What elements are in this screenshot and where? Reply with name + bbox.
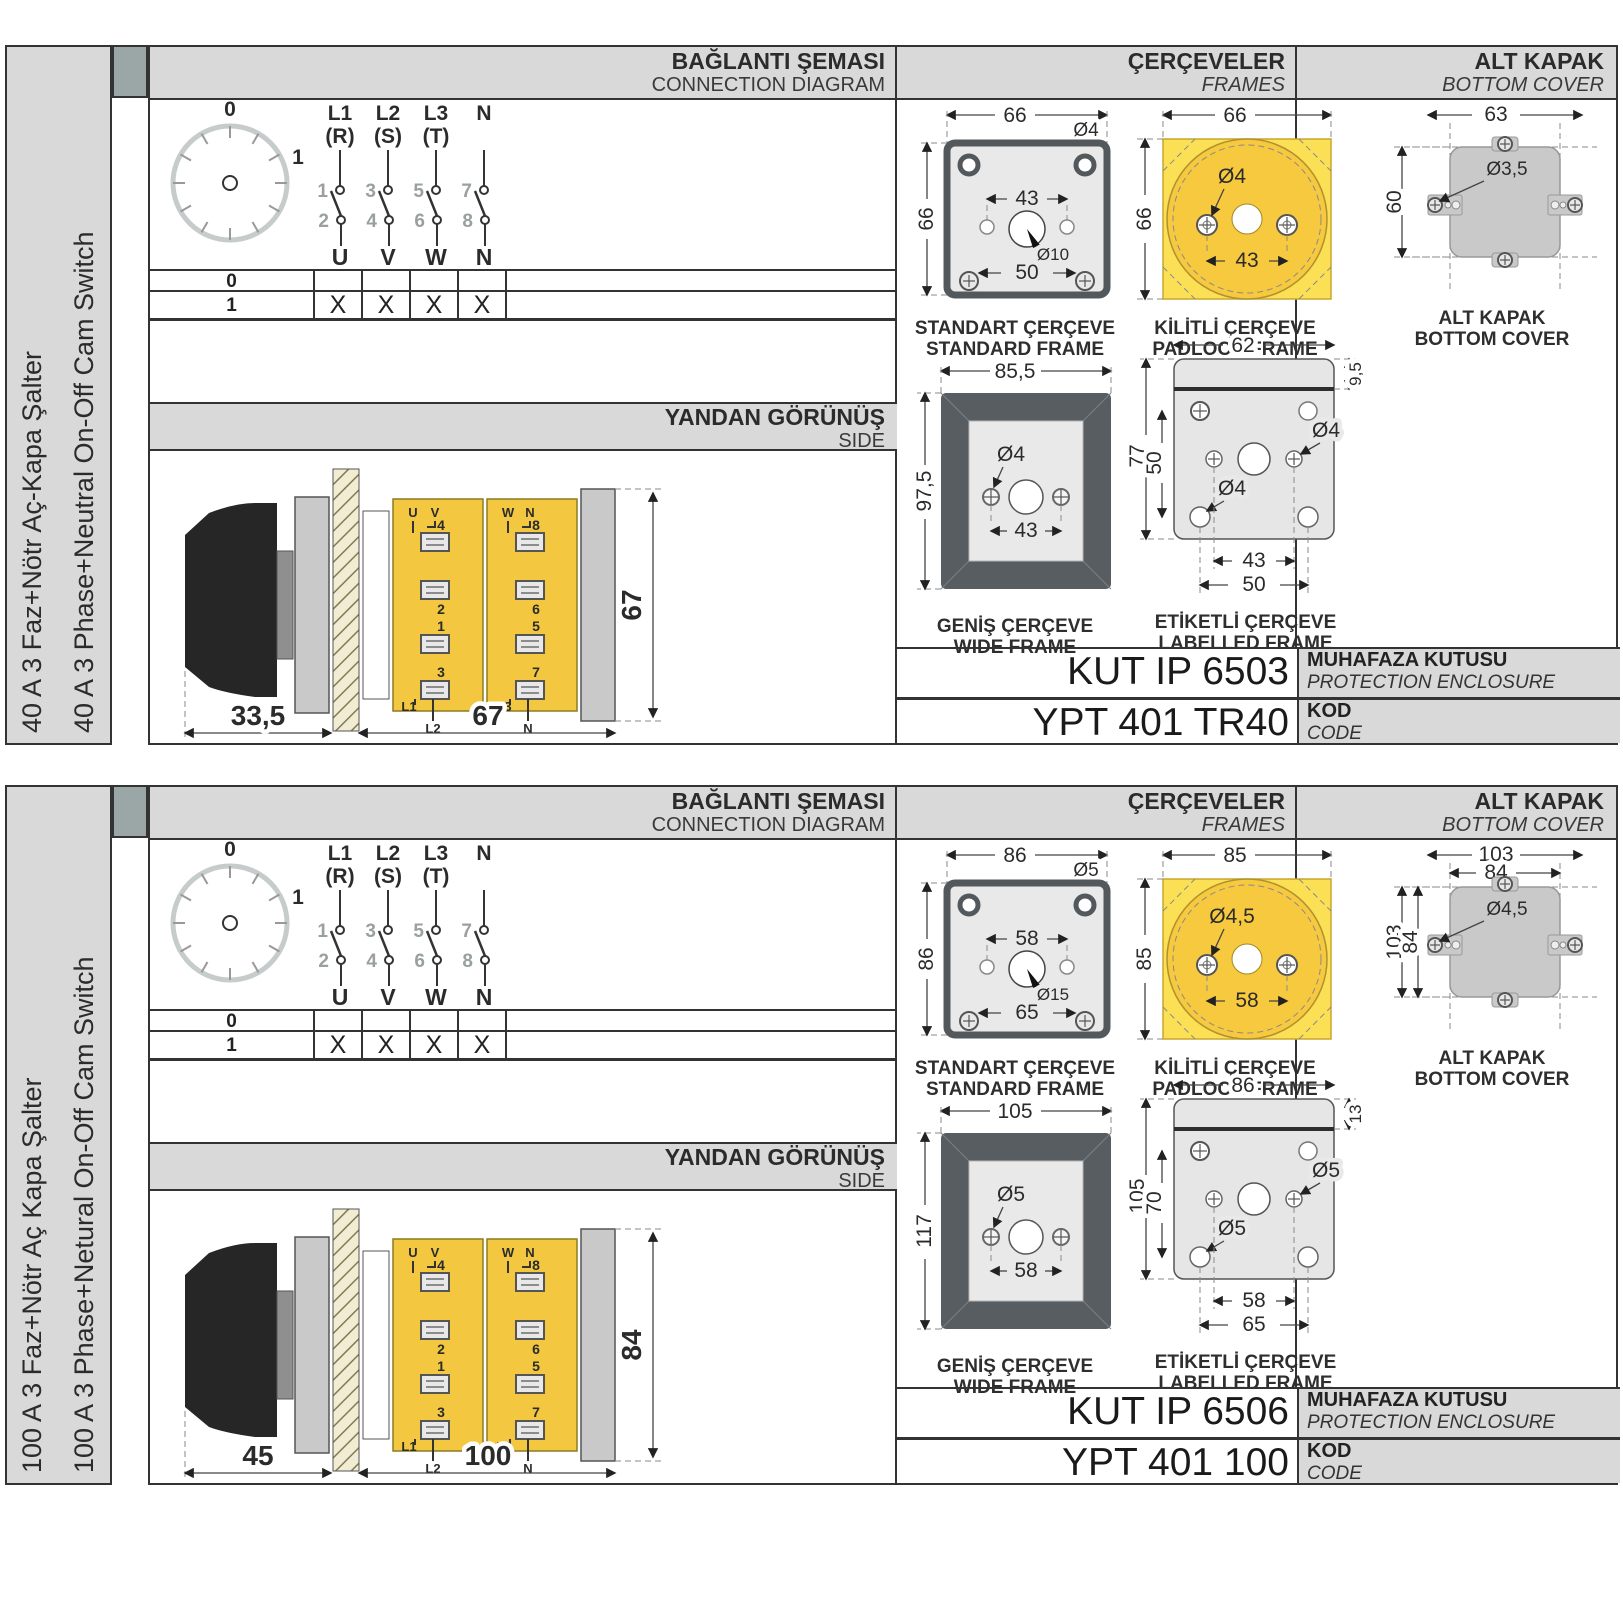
cover-height-inner-dim: 84 [1399, 930, 1422, 954]
enclosure-label-tr: MUHAFAZA KUTUSU [1307, 1389, 1620, 1412]
cover-hole-dim: Ø4,5 [1486, 899, 1527, 920]
pole1-line-label: L1 [328, 102, 353, 125]
term-left-bot1: L1 [401, 1439, 416, 1454]
standard-bottom-dim: 65 [1015, 1001, 1038, 1024]
pole2-contact-in: 3 [365, 921, 376, 942]
switch-handle [185, 503, 277, 697]
switch-pole-2: L2 (S) 3 4 V [365, 102, 402, 267]
term-left-3: 1 [437, 618, 445, 634]
labelled-width-dim: 86 [1231, 1075, 1254, 1097]
enclosure-code-labels: MUHAFAZA KUTUSU PROTECTION ENCLOSURE [1297, 1389, 1620, 1437]
standard-frame-label-tr: STANDART ÇERÇEVE [905, 1058, 1125, 1079]
product-code-row: YPT 401 TR40 KOD CODE [897, 697, 1620, 743]
frames-header-tr: ÇERÇEVELER [897, 789, 1285, 814]
product-title-english: 40 A 3 Phase+Neutral On-Off Cam Switch [67, 231, 101, 733]
labelled-frame-label-tr: ETİKETLİ ÇERÇEVE [1128, 612, 1363, 633]
enclosure-label-en: PROTECTION ENCLOSURE [1307, 1412, 1620, 1433]
side-handle-dim: 33,5 [231, 700, 286, 731]
side-height-dim: 84 [616, 1329, 647, 1361]
wide-frame-block: 105 Ø5 58 [905, 1099, 1125, 1398]
dial-position-0: 0 [224, 98, 236, 121]
code-label-en: CODE [1307, 723, 1620, 743]
code-label-tr: KOD [1307, 1440, 1620, 1463]
labelled-inner-height-dim: 50 [1143, 451, 1166, 474]
standard-hole-dim: Ø5 [1073, 860, 1098, 881]
connection-header: BAĞLANTI ŞEMASI CONNECTION DIAGRAM [150, 47, 897, 98]
cover-header-tr: ALT KAPAK [1297, 49, 1604, 74]
term-left-4: 3 [437, 664, 445, 680]
padlock-span-dim: 43 [1235, 249, 1258, 272]
pole2-out-label: V [380, 984, 396, 1007]
spacer [363, 511, 389, 699]
standard-span-dim: 43 [1015, 187, 1038, 210]
term-right-4: 7 [532, 1404, 540, 1420]
side-view-drawing: U V 4 2 1 3 L1 L2 [175, 1195, 715, 1485]
row0-mark-2 [363, 1011, 411, 1030]
column-headers: BAĞLANTI ŞEMASI CONNECTION DIAGRAM ÇERÇE… [150, 47, 1616, 100]
spacer-strip [112, 785, 148, 1485]
pole4-contact-out: 8 [462, 951, 473, 972]
code-label-tr: KOD [1307, 700, 1620, 723]
switch-pole-3: L3 (T) 5 6 W [413, 102, 449, 267]
wide-span-dim: 58 [1014, 1259, 1037, 1282]
labelled-strip-dim: 9,5 [1346, 362, 1363, 386]
pole2-contact-out: 4 [366, 211, 377, 232]
cover-header: ALT KAPAK BOTTOM COVER [1297, 47, 1614, 98]
pole4-line-label: N [476, 842, 491, 865]
row1-mark-3: X [411, 1032, 459, 1058]
section-main: BAĞLANTI ŞEMASI CONNECTION DIAGRAM ÇERÇE… [148, 45, 1618, 745]
term-left-4: 3 [437, 1404, 445, 1420]
row1-filler [507, 1032, 897, 1058]
panel-hatch [333, 1209, 359, 1471]
connection-header-tr: BAĞLANTI ŞEMASI [150, 789, 885, 814]
row0-mark-1 [315, 271, 363, 290]
table-row-0: 0 [150, 269, 897, 292]
switch-pole-1: L1 (R) 1 2 U [317, 102, 354, 267]
labelled-hole-right-dim: Ø4 [1312, 419, 1340, 442]
handle-shaft [277, 1291, 293, 1399]
row0-mark-4 [459, 271, 507, 290]
wide-span-dim: 43 [1014, 519, 1037, 542]
pole4-contact-out: 8 [462, 211, 473, 232]
standard-frame-label-en: STANDARD FRAME [905, 339, 1125, 360]
standard-center-hole-dim: Ø10 [1037, 245, 1069, 264]
cover-header-tr: ALT KAPAK [1297, 789, 1604, 814]
row0-mark-3 [411, 1011, 459, 1030]
labelled-width-dim: 62 [1231, 335, 1254, 357]
product-title-turkish: 40 A 3 Faz+Nötr Aç-Kapa Şalter [15, 351, 49, 733]
term-right-top1: W [502, 505, 515, 520]
labelled-hole-left-dim: Ø5 [1218, 1217, 1246, 1240]
row1-position: 1 [150, 1032, 315, 1058]
standard-frame-drawing: 86 Ø5 86 58 [905, 843, 1125, 1053]
wide-frame-drawing: 105 Ø5 58 [905, 1099, 1125, 1351]
labelled-span-dim: 58 [1242, 1289, 1265, 1312]
switch-pole-1: L1 (R) 1 2 U [317, 842, 354, 1007]
labelled-hole-left-dim: Ø4 [1218, 477, 1246, 500]
pole1-phase-label: (R) [325, 125, 354, 148]
pole2-out-label: V [380, 244, 396, 267]
row1-mark-2: X [363, 1032, 411, 1058]
term-left-3: 1 [437, 1358, 445, 1374]
pole1-contact-in: 1 [317, 181, 328, 202]
pole2-contact-out: 4 [366, 951, 377, 972]
row1-mark-3: X [411, 292, 459, 318]
row1-mark-4: X [459, 292, 507, 318]
frames-header-en: FRAMES [897, 814, 1285, 837]
pole3-line-label: L3 [424, 842, 449, 865]
corner-square [112, 785, 148, 838]
pole4-contact-in: 7 [461, 181, 472, 202]
table-row-1: 1 X X X X [150, 292, 897, 321]
enclosure-code-row: KUT IP 6503 MUHAFAZA KUTUSU PROTECTION E… [897, 647, 1620, 697]
row0-filler [507, 271, 897, 290]
pole3-contact-out: 6 [414, 951, 425, 972]
standard-hole-dim: Ø4 [1073, 120, 1099, 141]
product-title-english: 100 A 3 Phase+Netural On-Off Cam Switch [67, 956, 101, 1473]
labelled-hole-right-dim: Ø5 [1312, 1159, 1340, 1182]
wide-frame-label-tr: GENİŞ ÇERÇEVE [905, 616, 1125, 637]
term-left-2: 2 [437, 601, 445, 617]
enclosure-code-value: KUT IP 6506 [897, 1389, 1297, 1437]
frames-header-en: FRAMES [897, 74, 1285, 97]
end-plate [581, 489, 615, 721]
section-main: BAĞLANTI ŞEMASI CONNECTION DIAGRAM ÇERÇE… [148, 785, 1618, 1485]
term-right-3: 5 [532, 618, 540, 634]
pole2-line-label: L2 [376, 102, 401, 125]
pole1-out-label: U [332, 984, 349, 1007]
pole3-out-label: W [425, 984, 447, 1007]
term-right-1: 8 [532, 517, 540, 533]
pole2-line-label: L2 [376, 842, 401, 865]
pole3-phase-label: (T) [423, 125, 450, 148]
cover-header-en: BOTTOM COVER [1297, 74, 1604, 97]
dial-position-1: 1 [292, 886, 304, 909]
frames-header-tr: ÇERÇEVELER [897, 49, 1285, 74]
pole3-phase-label: (T) [423, 865, 450, 888]
switch-pole-4: N 7 8 N [461, 842, 492, 1007]
product-code-labels: KOD CODE [1297, 1440, 1620, 1483]
enclosure-code-labels: MUHAFAZA KUTUSU PROTECTION ENCLOSURE [1297, 649, 1620, 697]
labelled-frame-drawing: 62 9,5 Ø4 Ø4 [1128, 335, 1363, 607]
column-headers: BAĞLANTI ŞEMASI CONNECTION DIAGRAM ÇERÇE… [150, 787, 1616, 840]
row1-mark-2: X [363, 292, 411, 318]
enclosure-label-tr: MUHAFAZA KUTUSU [1307, 649, 1620, 672]
corner-square [112, 45, 148, 98]
spacer-strip [112, 45, 148, 745]
padlock-height-dim: 85 [1133, 947, 1156, 970]
dial-position-0: 0 [224, 838, 236, 861]
standard-frame-drawing: 66 Ø4 66 43 [905, 103, 1125, 313]
labelled-strip-dim: 13 [1346, 1105, 1363, 1124]
end-plate [581, 1229, 615, 1461]
labelled-span-dim: 43 [1242, 549, 1265, 572]
product-section: 40 A 3 Faz+Nötr Aç-Kapa Şalter 40 A 3 Ph… [5, 45, 1618, 745]
padlock-hole-dim: Ø4 [1218, 165, 1246, 188]
side-handle-dim: 45 [242, 1440, 273, 1471]
term-left-1: 4 [437, 517, 445, 533]
padlock-height-dim: 66 [1133, 207, 1156, 230]
labelled-bottom-dim: 65 [1242, 1313, 1265, 1336]
pole4-line-label: N [476, 102, 491, 125]
term-left-1: 4 [437, 1257, 445, 1273]
product-code-value: YPT 401 100 [897, 1440, 1297, 1483]
table-row-1: 1 X X X X [150, 1032, 897, 1061]
row0-mark-3 [411, 271, 459, 290]
switch-dial: 0 1 [173, 838, 304, 980]
labelled-frame-block: 86 13 Ø5 Ø5 [1128, 1075, 1363, 1394]
term-right-3: 5 [532, 1358, 540, 1374]
spacer [363, 1251, 389, 1439]
wide-height-dim: 97,5 [913, 471, 936, 512]
side-body-dim: 100 [465, 1440, 512, 1471]
row0-mark-2 [363, 271, 411, 290]
cover-header: ALT KAPAK BOTTOM COVER [1297, 787, 1614, 838]
cover-hole-dim: Ø3,5 [1486, 159, 1527, 180]
wide-frame-block: 85,5 Ø4 43 [905, 359, 1125, 658]
pole3-out-label: W [425, 244, 447, 267]
standard-span-dim: 58 [1015, 927, 1038, 950]
padlock-width-dim: 85 [1223, 844, 1246, 867]
term-left-top1: U [408, 505, 417, 520]
row1-mark-1: X [315, 1032, 363, 1058]
pole1-phase-label: (R) [325, 865, 354, 888]
table-row-0: 0 [150, 1009, 897, 1032]
term-right-1: 8 [532, 1257, 540, 1273]
switch-pole-3: L3 (T) 5 6 W [413, 842, 449, 1007]
side-view-drawing: U V 4 2 1 3 L1 L2 [175, 455, 715, 745]
connection-diagram: 0 1 L1 (R) 1 2 U L2 (S) 3 [150, 98, 897, 267]
product-title-band: 100 A 3 Faz+Nötr Aç Kapa Şalter 100 A 3 … [5, 785, 112, 1485]
connection-header: BAĞLANTI ŞEMASI CONNECTION DIAGRAM [150, 787, 897, 838]
switching-table: 0 1 X X X X [150, 1009, 897, 1061]
labelled-frame-drawing: 86 13 Ø5 Ø5 [1128, 1075, 1363, 1347]
frames-header: ÇERÇEVELER FRAMES [897, 47, 1297, 98]
bottom-cover-drawing: 63 [1372, 103, 1612, 303]
pole4-contact-in: 7 [461, 921, 472, 942]
pole3-contact-out: 6 [414, 211, 425, 232]
enclosure-code-value: KUT IP 6503 [897, 649, 1297, 697]
side-view-band: YANDAN GÖRÜNÜŞ SIDE [150, 1142, 897, 1191]
standard-frame-label-en: STANDARD FRAME [905, 1079, 1125, 1100]
row0-mark-1 [315, 1011, 363, 1030]
wide-hole-dim: Ø5 [997, 1183, 1025, 1206]
front-plate [295, 497, 329, 713]
bottom-cover-label-tr: ALT KAPAK [1372, 1048, 1612, 1069]
row0-position: 0 [150, 271, 315, 290]
standard-frame-block: 66 Ø4 66 43 [905, 103, 1125, 360]
code-label-en: CODE [1307, 1463, 1620, 1483]
bottom-cover-block: 103 84 [1372, 843, 1612, 1090]
term-right-2: 6 [532, 601, 540, 617]
pole2-contact-in: 3 [365, 181, 376, 202]
standard-frame-block: 86 Ø5 86 58 [905, 843, 1125, 1100]
bottom-cover-label-tr: ALT KAPAK [1372, 308, 1612, 329]
standard-bottom-dim: 50 [1015, 261, 1038, 284]
standard-width-dim: 66 [1003, 104, 1026, 127]
cover-height-outer-dim: 60 [1383, 190, 1406, 213]
pole1-contact-in: 1 [317, 921, 328, 942]
cover-width-outer-dim: 63 [1484, 103, 1507, 126]
pole3-contact-in: 5 [413, 181, 424, 202]
bottom-cover-drawing: 103 84 [1372, 843, 1612, 1043]
connection-diagram: 0 1 L1 (R) 1 2 U L2 (S) 3 [150, 838, 897, 1007]
switch-dial: 0 1 [173, 98, 304, 240]
term-right-2: 6 [532, 1341, 540, 1357]
product-section: 100 A 3 Faz+Nötr Aç Kapa Şalter 100 A 3 … [5, 785, 1618, 1485]
product-title-turkish: 100 A 3 Faz+Nötr Aç Kapa Şalter [15, 1078, 49, 1474]
connection-header-tr: BAĞLANTI ŞEMASI [150, 49, 885, 74]
side-view-title-en: SIDE [150, 1170, 885, 1193]
side-view-title-en: SIDE [150, 430, 885, 453]
pole4-out-label: N [476, 984, 493, 1007]
product-code-value: YPT 401 TR40 [897, 700, 1297, 743]
wide-height-dim: 117 [913, 1214, 936, 1247]
pole1-out-label: U [332, 244, 349, 267]
labelled-frame-label-tr: ETİKETLİ ÇERÇEVE [1128, 1352, 1363, 1373]
pole3-line-label: L3 [424, 102, 449, 125]
standard-height-dim: 86 [915, 947, 938, 970]
padlock-frame-drawing: 66 Ø4 [1125, 103, 1345, 313]
wide-hole-dim: Ø4 [997, 443, 1025, 466]
row0-position: 0 [150, 1011, 315, 1030]
standard-frame-label-tr: STANDART ÇERÇEVE [905, 318, 1125, 339]
row1-mark-1: X [315, 292, 363, 318]
pole1-line-label: L1 [328, 842, 353, 865]
pole1-contact-out: 2 [318, 951, 329, 972]
term-left-2: 2 [437, 1341, 445, 1357]
cover-header-en: BOTTOM COVER [1297, 814, 1604, 837]
switch-handle [185, 1243, 277, 1437]
bottom-cover-label-en: BOTTOM COVER [1372, 329, 1612, 350]
switch-pole-2: L2 (S) 3 4 V [365, 842, 402, 1007]
cover-dim-width-outer: 63 [1428, 103, 1582, 126]
pole2-phase-label: (S) [374, 865, 402, 888]
row1-position: 1 [150, 292, 315, 318]
switch-pole-4: N 7 8 N [461, 102, 492, 267]
side-height-dim: 67 [616, 589, 647, 620]
product-code-row: YPT 401 100 KOD CODE [897, 1437, 1620, 1483]
term-right-bot2: N [523, 1461, 532, 1476]
handle-shaft [277, 551, 293, 659]
labelled-inner-height-dim: 70 [1143, 1191, 1166, 1214]
frames-header: ÇERÇEVELER FRAMES [897, 787, 1297, 838]
connection-header-en: CONNECTION DIAGRAM [150, 814, 885, 837]
pole3-contact-in: 5 [413, 921, 424, 942]
wide-frame-drawing: 85,5 Ø4 43 [905, 359, 1125, 611]
term-left-bot1: L1 [401, 699, 416, 714]
term-left-bot2: L2 [425, 1461, 440, 1476]
side-body-dim: 67 [472, 700, 503, 731]
pole2-phase-label: (S) [374, 125, 402, 148]
wide-width-dim: 85,5 [995, 360, 1036, 383]
enclosure-code-row: KUT IP 6506 MUHAFAZA KUTUSU PROTECTION E… [897, 1387, 1620, 1437]
enclosure-label-en: PROTECTION ENCLOSURE [1307, 672, 1620, 693]
wide-width-dim: 105 [997, 1100, 1032, 1123]
pole1-contact-out: 2 [318, 211, 329, 232]
term-left-bot2: L2 [425, 721, 440, 736]
labelled-frame-block: 62 9,5 Ø4 Ø4 [1128, 335, 1363, 654]
labelled-bottom-dim: 50 [1242, 573, 1265, 596]
dial-position-1: 1 [292, 146, 304, 169]
standard-center-hole-dim: Ø15 [1037, 985, 1069, 1004]
product-code-labels: KOD CODE [1297, 700, 1620, 743]
row0-filler [507, 1011, 897, 1030]
side-view-title-tr: YANDAN GÖRÜNÜŞ [150, 1145, 885, 1170]
bottom-cover-label-en: BOTTOM COVER [1372, 1069, 1612, 1090]
padlock-hole-dim: Ø4,5 [1209, 905, 1255, 928]
row0-mark-4 [459, 1011, 507, 1030]
side-view-band: YANDAN GÖRÜNÜŞ SIDE [150, 402, 897, 451]
product-title-band: 40 A 3 Faz+Nötr Aç-Kapa Şalter 40 A 3 Ph… [5, 45, 112, 745]
padlock-frame-block: 66 Ø4 [1125, 103, 1345, 360]
standard-height-dim: 66 [915, 207, 938, 230]
wide-frame-label-tr: GENİŞ ÇERÇEVE [905, 1356, 1125, 1377]
term-right-4: 7 [532, 664, 540, 680]
padlock-width-dim: 66 [1223, 104, 1246, 127]
front-plate [295, 1237, 329, 1453]
row1-mark-4: X [459, 1032, 507, 1058]
panel-hatch [333, 469, 359, 731]
side-view-title-tr: YANDAN GÖRÜNÜŞ [150, 405, 885, 430]
standard-width-dim: 86 [1003, 844, 1026, 867]
term-left-top1: U [408, 1245, 417, 1260]
row1-filler [507, 292, 897, 318]
term-right-top1: W [502, 1245, 515, 1260]
padlock-span-dim: 58 [1235, 989, 1258, 1012]
bottom-cover-block: 63 [1372, 103, 1612, 350]
connection-header-en: CONNECTION DIAGRAM [150, 74, 885, 97]
term-right-bot2: N [523, 721, 532, 736]
padlock-frame-block: 85 Ø4,5 [1125, 843, 1345, 1100]
padlock-frame-drawing: 85 Ø4,5 [1125, 843, 1345, 1053]
pole4-out-label: N [476, 244, 493, 267]
switching-table: 0 1 X X X X [150, 269, 897, 321]
